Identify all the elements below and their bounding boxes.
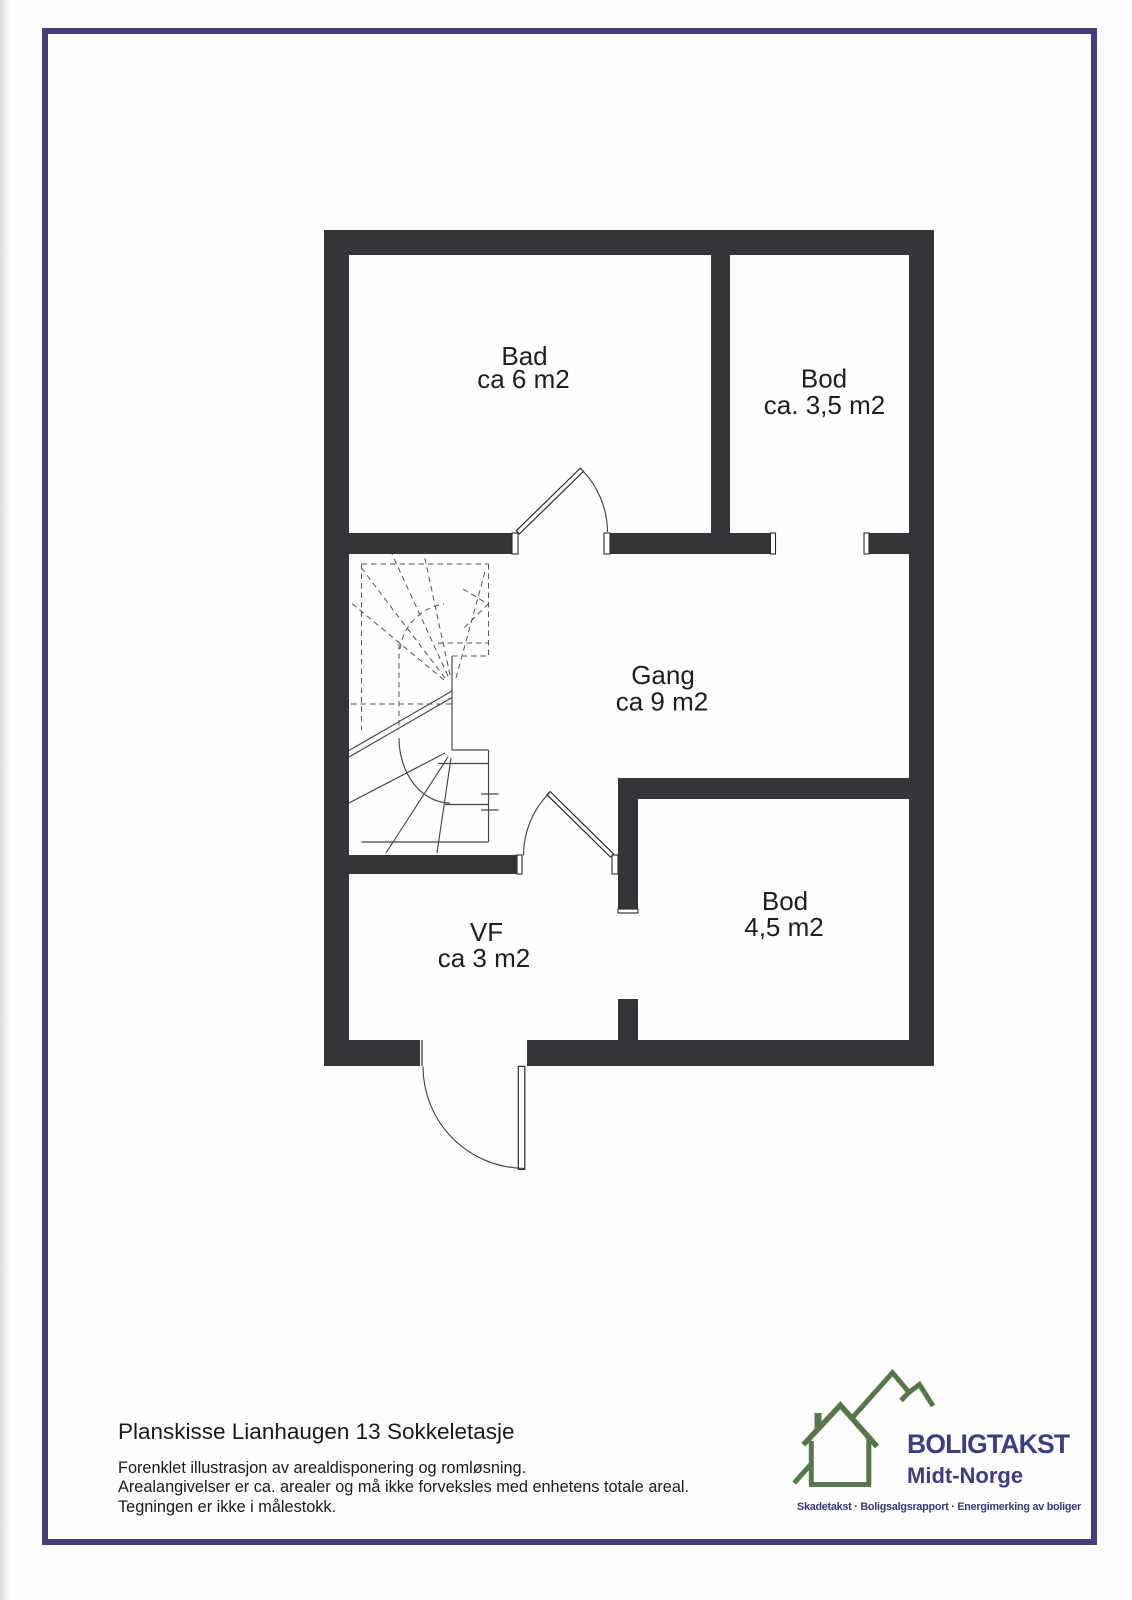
svg-text:Bod: Bod [801,364,847,394]
svg-text:ca 9 m2: ca 9 m2 [616,687,709,717]
svg-text:ca. 3,5 m2: ca. 3,5 m2 [764,390,885,420]
svg-text:Midt-Norge: Midt-Norge [907,1463,1023,1488]
svg-text:ca 6 m2: ca 6 m2 [477,364,570,394]
svg-text:4,5 m2: 4,5 m2 [744,912,824,942]
svg-text:Gang: Gang [631,660,695,690]
svg-text:Skadetakst · Boligsalgsrapport: Skadetakst · Boligsalgsrapport · Energim… [797,1501,1082,1513]
svg-text:BOLIGTAKST: BOLIGTAKST [907,1429,1070,1459]
svg-text:ca 3 m2: ca 3 m2 [438,943,531,973]
